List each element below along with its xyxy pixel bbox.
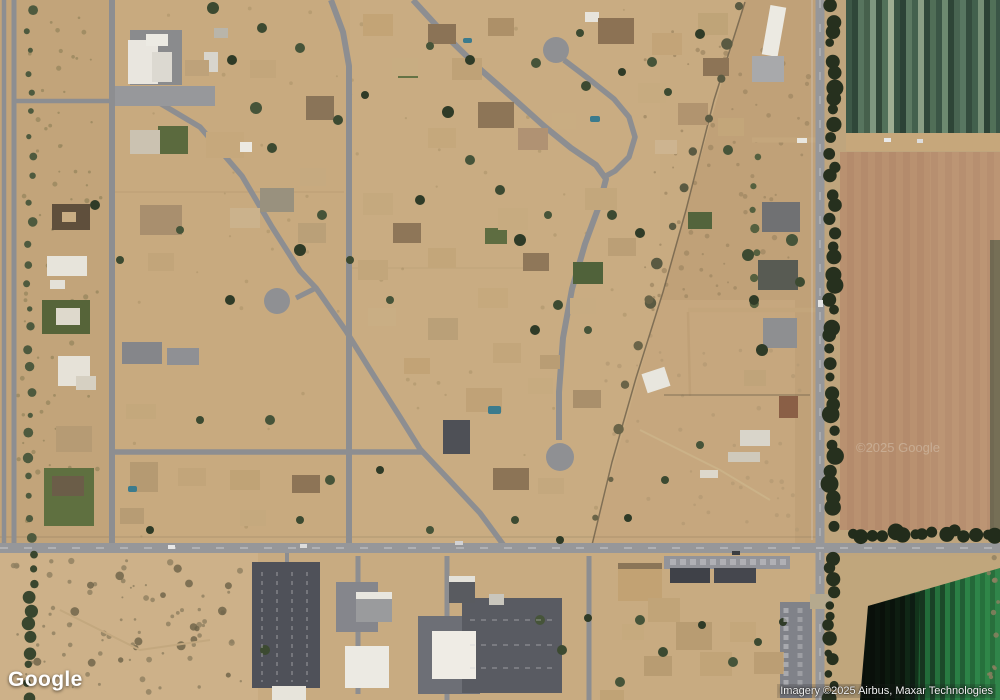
building xyxy=(52,476,84,496)
tree xyxy=(116,256,124,264)
tree xyxy=(90,200,100,210)
lawn xyxy=(158,126,188,154)
building xyxy=(206,132,244,158)
tree xyxy=(749,295,759,305)
tree xyxy=(361,91,369,99)
vehicle xyxy=(455,541,463,545)
building xyxy=(152,52,172,82)
tree xyxy=(346,256,354,264)
tree xyxy=(333,115,343,125)
building xyxy=(62,212,76,222)
tree xyxy=(635,615,645,625)
building xyxy=(214,28,228,38)
tree xyxy=(795,277,805,287)
tree xyxy=(754,638,762,646)
tree xyxy=(618,68,626,76)
map-canvas: ©2025 Google xyxy=(0,0,1000,700)
building xyxy=(622,624,644,640)
tree xyxy=(426,42,434,50)
tree xyxy=(553,300,563,310)
building xyxy=(758,260,798,290)
building xyxy=(432,631,476,679)
tree xyxy=(696,441,704,449)
lawn xyxy=(688,212,712,229)
tree xyxy=(756,344,768,356)
attribution-text: Imagery ©2025 Airbus, Maxar Technologies xyxy=(777,684,996,698)
tree xyxy=(325,475,335,485)
building xyxy=(648,598,680,622)
tree xyxy=(196,416,204,424)
pool xyxy=(128,486,137,492)
tree xyxy=(544,211,552,219)
building xyxy=(714,568,756,583)
building xyxy=(122,342,162,364)
building xyxy=(744,370,766,386)
tree xyxy=(317,210,327,220)
building xyxy=(428,318,458,340)
building xyxy=(730,622,756,642)
building xyxy=(140,205,182,235)
tree xyxy=(386,296,394,304)
tree xyxy=(426,526,434,534)
pool xyxy=(488,406,501,414)
tree xyxy=(376,466,384,474)
parking-lot xyxy=(252,562,320,688)
tree xyxy=(723,145,733,155)
building xyxy=(598,18,634,44)
building xyxy=(404,358,430,374)
building xyxy=(700,470,718,478)
tree xyxy=(146,526,154,534)
google-logo[interactable]: Google xyxy=(8,668,83,692)
building xyxy=(752,56,784,82)
building xyxy=(230,208,260,228)
building xyxy=(478,288,508,308)
building xyxy=(130,130,160,154)
tree xyxy=(576,29,584,37)
building xyxy=(260,188,294,212)
cul-de-sac xyxy=(543,37,569,63)
tree xyxy=(786,234,798,246)
building xyxy=(230,470,260,490)
tree xyxy=(557,645,567,655)
building xyxy=(56,426,92,452)
building xyxy=(300,168,326,186)
tree xyxy=(530,325,540,335)
tree xyxy=(294,244,306,256)
vehicle xyxy=(300,544,307,548)
tree xyxy=(465,155,475,165)
building xyxy=(50,280,65,289)
building xyxy=(368,308,396,326)
building xyxy=(428,128,456,148)
building xyxy=(718,118,744,136)
building xyxy=(644,656,672,676)
building xyxy=(47,256,87,276)
building xyxy=(552,113,576,129)
building xyxy=(393,223,421,243)
tree xyxy=(728,657,738,667)
building xyxy=(306,96,334,120)
vehicle xyxy=(818,300,823,307)
tree xyxy=(664,88,672,96)
building xyxy=(178,468,206,486)
tree xyxy=(742,249,754,261)
tree xyxy=(607,210,617,220)
tree xyxy=(514,234,526,246)
tree xyxy=(624,514,632,522)
building xyxy=(272,686,306,700)
building xyxy=(638,83,666,103)
tree xyxy=(531,58,541,68)
tree xyxy=(265,415,275,425)
tree xyxy=(635,228,645,238)
cul-de-sac xyxy=(546,443,574,471)
tree xyxy=(584,326,592,334)
building xyxy=(754,652,784,674)
tree xyxy=(584,614,592,622)
building xyxy=(356,592,392,599)
building xyxy=(489,594,504,605)
tree xyxy=(442,106,454,118)
tree xyxy=(176,226,184,234)
tree xyxy=(296,516,304,524)
building xyxy=(585,12,599,22)
parking-lot xyxy=(115,86,215,106)
building xyxy=(585,188,617,210)
tree xyxy=(415,195,425,205)
building xyxy=(763,318,797,348)
tree xyxy=(257,23,267,33)
building xyxy=(703,58,729,76)
tree xyxy=(695,29,705,39)
building xyxy=(493,343,521,363)
building xyxy=(797,138,807,143)
building xyxy=(573,390,601,408)
building xyxy=(449,576,475,582)
building xyxy=(148,253,174,271)
cul-de-sac xyxy=(264,288,290,314)
building xyxy=(762,202,800,232)
building xyxy=(655,140,677,154)
building xyxy=(618,563,662,569)
building xyxy=(250,60,276,78)
tree xyxy=(227,55,237,65)
lawn xyxy=(485,228,507,244)
vehicle xyxy=(732,551,740,555)
tree xyxy=(698,621,706,629)
building xyxy=(478,102,514,128)
building xyxy=(428,248,456,268)
building xyxy=(600,690,624,700)
tree xyxy=(615,677,625,687)
tree xyxy=(511,516,519,524)
tree xyxy=(581,81,591,91)
building xyxy=(523,253,549,271)
tree xyxy=(465,55,475,65)
building xyxy=(493,468,529,490)
building xyxy=(700,652,732,676)
tree xyxy=(495,185,505,195)
tree xyxy=(295,43,305,53)
tree xyxy=(647,57,657,67)
building xyxy=(363,193,393,215)
tree xyxy=(556,536,564,544)
tree xyxy=(658,647,668,657)
building xyxy=(392,58,418,76)
pool xyxy=(463,38,472,43)
building xyxy=(443,420,470,454)
building xyxy=(126,404,156,419)
building xyxy=(358,260,388,280)
building xyxy=(428,24,456,44)
building xyxy=(528,378,553,394)
building xyxy=(570,298,596,314)
building xyxy=(240,142,252,152)
building xyxy=(678,103,708,125)
building xyxy=(652,33,682,55)
building xyxy=(363,14,393,36)
building xyxy=(120,508,144,524)
tree xyxy=(225,295,235,305)
building xyxy=(76,376,96,390)
building xyxy=(185,60,209,76)
google-watermark: ©2025 Google xyxy=(856,440,940,455)
building xyxy=(167,348,199,365)
building xyxy=(498,208,528,230)
building xyxy=(670,568,710,583)
building xyxy=(345,646,389,688)
building xyxy=(676,622,712,650)
lawn xyxy=(573,262,603,284)
vehicle xyxy=(168,545,175,549)
building xyxy=(779,396,798,418)
building xyxy=(488,18,514,36)
tree xyxy=(267,143,277,153)
building xyxy=(740,430,770,446)
building xyxy=(518,128,548,150)
pool xyxy=(590,116,600,122)
building xyxy=(292,475,320,493)
vehicle xyxy=(917,139,923,143)
building xyxy=(240,510,266,526)
tree xyxy=(661,476,669,484)
vehicle xyxy=(884,138,891,142)
building xyxy=(146,34,168,46)
building xyxy=(538,478,564,494)
tree xyxy=(207,2,219,14)
tree xyxy=(250,102,262,114)
building xyxy=(728,452,760,462)
satellite-map-view[interactable]: ©2025 Google Google Imagery ©2025 Airbus… xyxy=(0,0,1000,700)
building xyxy=(540,355,560,369)
building xyxy=(56,308,80,325)
building xyxy=(298,223,326,243)
building xyxy=(608,238,636,256)
